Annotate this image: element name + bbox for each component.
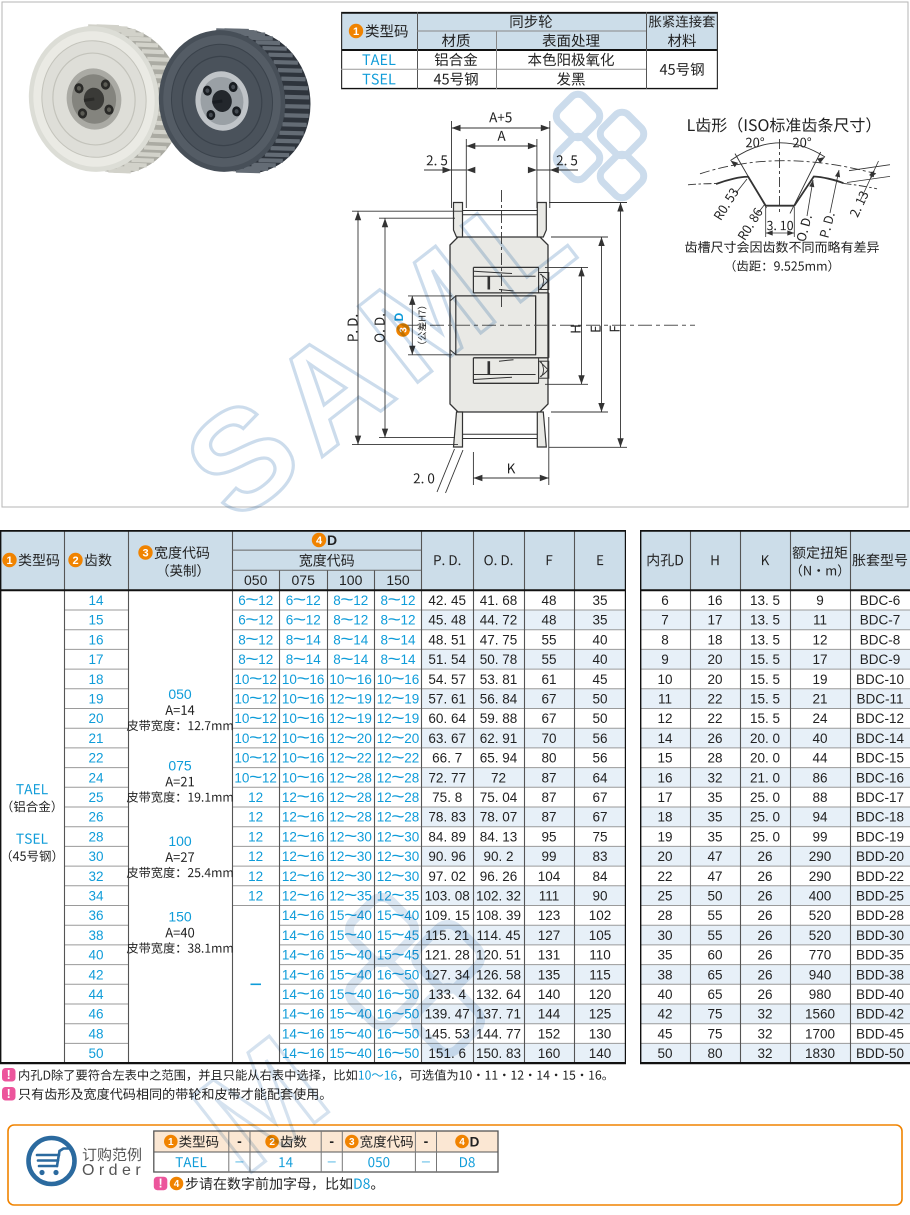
svg-text:40: 40 (592, 652, 607, 667)
svg-text:10: 10 (282, 731, 297, 746)
svg-text:12: 12 (353, 593, 368, 608)
svg-text:28: 28 (357, 770, 372, 785)
svg-text:17: 17 (657, 790, 672, 805)
svg-text:30: 30 (404, 869, 419, 884)
svg-text:111: 111 (539, 889, 560, 904)
svg-text:26: 26 (757, 967, 772, 982)
svg-text:980: 980 (809, 987, 832, 1002)
svg-text:BDC-15: BDC-15 (856, 751, 904, 766)
svg-text:67: 67 (541, 692, 556, 707)
svg-text:35: 35 (592, 593, 607, 608)
svg-text:~: ~ (293, 649, 306, 669)
svg-text:16: 16 (309, 1007, 324, 1022)
svg-text:12: 12 (282, 829, 297, 844)
svg-text:20: 20 (707, 652, 722, 667)
svg-text:1830: 1830 (805, 1046, 835, 1061)
svg-text:~: ~ (340, 649, 353, 669)
svg-text:105: 105 (589, 928, 612, 943)
svg-text:4: 4 (459, 1137, 465, 1148)
svg-text:13. 5: 13. 5 (750, 593, 780, 608)
svg-text:127: 127 (538, 928, 561, 943)
svg-text:12: 12 (377, 731, 392, 746)
svg-text:16: 16 (88, 632, 103, 647)
svg-text:28: 28 (88, 829, 103, 844)
svg-text:BDC-10: BDC-10 (856, 672, 904, 687)
svg-text:10: 10 (282, 751, 297, 766)
svg-text:~: ~ (344, 1043, 357, 1063)
svg-text:26: 26 (88, 810, 103, 825)
svg-text:290: 290 (809, 869, 832, 884)
svg-text:16: 16 (377, 1046, 392, 1061)
svg-text:46: 46 (88, 1007, 103, 1022)
svg-text:30: 30 (404, 829, 419, 844)
svg-text:~: ~ (344, 1023, 357, 1043)
svg-text:~: ~ (344, 826, 357, 846)
svg-text:14: 14 (282, 1007, 298, 1022)
svg-text:64: 64 (592, 770, 608, 785)
svg-text:~: ~ (344, 846, 357, 866)
svg-text:20: 20 (357, 731, 372, 746)
svg-text:8: 8 (661, 632, 669, 647)
svg-text:~: ~ (344, 708, 357, 728)
svg-text:17: 17 (88, 652, 103, 667)
svg-text:22: 22 (357, 751, 372, 766)
svg-text:40: 40 (812, 731, 827, 746)
svg-text:12: 12 (282, 849, 297, 864)
svg-text:075: 075 (292, 572, 316, 588)
svg-text:~: ~ (249, 669, 262, 689)
svg-text:40: 40 (657, 987, 672, 1002)
svg-text:56: 56 (592, 751, 607, 766)
svg-text:28: 28 (357, 790, 372, 805)
svg-text:12: 12 (377, 770, 392, 785)
svg-text:100: 100 (339, 572, 363, 588)
svg-text:D: D (327, 532, 337, 548)
svg-text:16: 16 (309, 1046, 324, 1061)
svg-text:150. 83: 150. 83 (476, 1046, 521, 1061)
svg-text:65. 94: 65. 94 (480, 751, 518, 766)
svg-text:BDC-14: BDC-14 (856, 731, 905, 746)
svg-text:87: 87 (541, 770, 556, 785)
svg-text:050: 050 (244, 572, 268, 588)
svg-text:16: 16 (309, 810, 324, 825)
svg-text:520: 520 (809, 928, 832, 943)
svg-text:050: 050 (168, 686, 192, 702)
svg-text:BDC-17: BDC-17 (856, 790, 904, 805)
svg-text:10: 10 (282, 672, 297, 687)
svg-text:1: 1 (168, 1137, 174, 1148)
svg-text:12: 12 (262, 770, 277, 785)
svg-text:38: 38 (657, 967, 672, 982)
svg-text:~: ~ (391, 1043, 404, 1063)
svg-text:25. 0: 25. 0 (750, 810, 780, 825)
svg-text:26: 26 (757, 948, 772, 963)
svg-text:48: 48 (88, 1026, 103, 1041)
svg-text:130: 130 (589, 1026, 612, 1041)
svg-text:30: 30 (357, 849, 372, 864)
svg-text:96. 26: 96. 26 (480, 869, 518, 884)
svg-text:15. 5: 15. 5 (750, 672, 780, 687)
svg-text:10: 10 (282, 770, 297, 785)
svg-text:20. 0: 20. 0 (750, 751, 780, 766)
svg-text:1700: 1700 (805, 1026, 835, 1041)
svg-text:12: 12 (282, 869, 297, 884)
svg-text:-: - (424, 1133, 429, 1149)
svg-text:120: 120 (589, 987, 612, 1002)
svg-text:24: 24 (812, 711, 828, 726)
svg-text:44: 44 (88, 987, 104, 1002)
svg-text:400: 400 (809, 889, 832, 904)
svg-text:126. 58: 126. 58 (476, 967, 521, 982)
svg-text:40: 40 (357, 1046, 372, 1061)
svg-text:30: 30 (657, 928, 672, 943)
svg-text:72: 72 (491, 770, 506, 785)
svg-text:40: 40 (357, 1026, 372, 1041)
svg-text:16: 16 (657, 770, 672, 785)
svg-text:BDD-22: BDD-22 (856, 869, 904, 884)
svg-text:20: 20 (707, 672, 722, 687)
svg-text:!: ! (158, 1177, 162, 1191)
svg-text:61: 61 (541, 672, 556, 687)
svg-text:51. 54: 51. 54 (428, 652, 466, 667)
svg-text:104: 104 (538, 869, 561, 884)
svg-text:12: 12 (329, 829, 344, 844)
svg-text:16: 16 (357, 672, 372, 687)
svg-text:62. 91: 62. 91 (480, 731, 518, 746)
svg-text:45: 45 (592, 672, 607, 687)
svg-text:132. 64: 132. 64 (476, 987, 522, 1002)
svg-text:66. 7: 66. 7 (432, 751, 462, 766)
svg-text:30: 30 (357, 829, 372, 844)
svg-text:115: 115 (589, 967, 611, 982)
svg-text:25. 0: 25. 0 (750, 790, 780, 805)
svg-text:~: ~ (391, 747, 404, 767)
svg-text:16: 16 (309, 967, 324, 982)
svg-text:16: 16 (309, 948, 324, 963)
svg-text:28: 28 (357, 810, 372, 825)
svg-text:15: 15 (329, 1026, 344, 1041)
svg-text:12: 12 (329, 770, 344, 785)
svg-text:~: ~ (245, 610, 258, 630)
svg-text:15. 5: 15. 5 (750, 711, 780, 726)
svg-text:15. 5: 15. 5 (750, 692, 780, 707)
svg-text:~: ~ (249, 767, 262, 787)
svg-text:16: 16 (377, 987, 392, 1002)
svg-text:16: 16 (309, 1026, 324, 1041)
svg-text:22: 22 (88, 751, 103, 766)
svg-text:~: ~ (296, 925, 309, 945)
svg-text:4: 4 (174, 1179, 180, 1190)
svg-text:47: 47 (707, 869, 722, 884)
svg-text:20: 20 (657, 849, 672, 864)
svg-text:35: 35 (404, 889, 419, 904)
svg-text:67: 67 (541, 711, 556, 726)
svg-text:14: 14 (282, 908, 298, 923)
svg-text:12: 12 (329, 751, 344, 766)
svg-text:770: 770 (809, 948, 832, 963)
svg-text:35: 35 (707, 829, 722, 844)
svg-text:60: 60 (707, 948, 722, 963)
svg-text:90: 90 (592, 889, 607, 904)
svg-text:BDC-16: BDC-16 (856, 770, 904, 785)
svg-text:131: 131 (538, 948, 561, 963)
svg-text:65: 65 (707, 987, 722, 1002)
svg-text:12: 12 (282, 810, 297, 825)
svg-text:84. 89: 84. 89 (428, 829, 466, 844)
svg-text:~: ~ (296, 964, 309, 984)
svg-text:~: ~ (391, 767, 404, 787)
svg-text:7: 7 (661, 613, 669, 628)
svg-text:16: 16 (404, 672, 419, 687)
svg-text:16: 16 (309, 770, 324, 785)
svg-text:13. 5: 13. 5 (750, 632, 780, 647)
svg-text:35: 35 (707, 790, 722, 805)
svg-text:12: 12 (353, 613, 368, 628)
svg-text:75: 75 (707, 1007, 722, 1022)
svg-text:55: 55 (541, 632, 556, 647)
svg-text:53. 81: 53. 81 (480, 672, 518, 687)
svg-text:94: 94 (812, 810, 828, 825)
svg-text:40: 40 (88, 948, 103, 963)
svg-text:~: ~ (340, 629, 353, 649)
svg-text:~: ~ (391, 984, 404, 1004)
svg-text:10: 10 (234, 711, 249, 726)
svg-text:12: 12 (401, 593, 416, 608)
svg-text:~: ~ (296, 669, 309, 689)
svg-text:80: 80 (707, 1046, 722, 1061)
svg-text:19: 19 (357, 692, 372, 707)
svg-text:121. 28: 121. 28 (425, 948, 470, 963)
svg-text:50: 50 (592, 711, 607, 726)
svg-text:~: ~ (391, 787, 404, 807)
svg-text:42: 42 (657, 1007, 672, 1022)
svg-text:56: 56 (592, 731, 607, 746)
svg-text:16: 16 (309, 928, 324, 943)
svg-text:14: 14 (282, 1026, 298, 1041)
svg-text:12: 12 (329, 810, 344, 825)
svg-text:12: 12 (306, 613, 321, 628)
svg-text:~: ~ (296, 807, 309, 827)
svg-text:57. 61: 57. 61 (428, 692, 466, 707)
svg-text:16: 16 (309, 751, 324, 766)
svg-text:12: 12 (377, 711, 392, 726)
svg-text:32: 32 (757, 1007, 772, 1022)
svg-text:12: 12 (248, 790, 263, 805)
svg-text:20: 20 (88, 711, 103, 726)
svg-text:~: ~ (391, 846, 404, 866)
svg-text:84. 13: 84. 13 (480, 829, 518, 844)
svg-text:14: 14 (353, 632, 369, 647)
svg-text:14: 14 (657, 731, 673, 746)
svg-text:BDC-8: BDC-8 (860, 632, 901, 647)
svg-text:32: 32 (707, 770, 722, 785)
svg-text:35: 35 (592, 613, 607, 628)
svg-text:11: 11 (658, 692, 672, 707)
svg-text:16: 16 (377, 967, 392, 982)
svg-text:90. 96: 90. 96 (428, 849, 466, 864)
svg-text:~: ~ (296, 747, 309, 767)
svg-text:~: ~ (344, 787, 357, 807)
svg-text:28: 28 (404, 770, 419, 785)
svg-text:BDD-45: BDD-45 (856, 1026, 904, 1041)
svg-text:67: 67 (592, 810, 607, 825)
svg-text:72. 77: 72. 77 (428, 770, 466, 785)
svg-text:BDD-38: BDD-38 (856, 967, 904, 982)
svg-text:10: 10 (377, 672, 392, 687)
svg-text:10: 10 (234, 751, 249, 766)
svg-text:56. 84: 56. 84 (480, 692, 518, 707)
svg-text:26: 26 (757, 889, 772, 904)
svg-text:16: 16 (707, 593, 722, 608)
svg-text:~: ~ (344, 866, 357, 886)
svg-text:12: 12 (258, 652, 273, 667)
svg-text:55: 55 (541, 652, 556, 667)
svg-text:18: 18 (88, 672, 103, 687)
svg-text:14: 14 (282, 987, 298, 1002)
svg-text:18: 18 (707, 632, 722, 647)
svg-text:70: 70 (541, 731, 556, 746)
svg-text:~: ~ (391, 826, 404, 846)
svg-text:075: 075 (168, 758, 192, 774)
svg-text:15: 15 (329, 967, 344, 982)
svg-text:~: ~ (344, 688, 357, 708)
svg-text:12: 12 (262, 731, 277, 746)
svg-text:102: 102 (589, 908, 612, 923)
svg-text:10: 10 (234, 731, 249, 746)
svg-text:15: 15 (329, 1046, 344, 1061)
svg-text:~: ~ (296, 688, 309, 708)
svg-text:16: 16 (309, 987, 324, 1002)
svg-text:520: 520 (809, 908, 832, 923)
svg-text:36: 36 (88, 908, 103, 923)
svg-text:10: 10 (282, 692, 297, 707)
svg-text:59. 88: 59. 88 (480, 711, 518, 726)
svg-text:~: ~ (344, 807, 357, 827)
svg-text:50: 50 (88, 1046, 103, 1061)
svg-text:10: 10 (234, 770, 249, 785)
svg-text:9: 9 (661, 652, 669, 667)
svg-text:~: ~ (245, 629, 258, 649)
svg-text:32: 32 (757, 1046, 772, 1061)
svg-text:44: 44 (812, 751, 828, 766)
svg-text:12: 12 (248, 889, 263, 904)
svg-text:~: ~ (391, 728, 404, 748)
svg-text:19: 19 (657, 829, 672, 844)
svg-text:25. 0: 25. 0 (750, 829, 780, 844)
svg-text:12: 12 (377, 692, 392, 707)
svg-text:19: 19 (88, 692, 103, 707)
svg-text:65: 65 (707, 967, 722, 982)
svg-text:BDD-25: BDD-25 (856, 889, 904, 904)
svg-text:21: 21 (88, 731, 103, 746)
svg-text:22: 22 (657, 869, 672, 884)
svg-text:18: 18 (657, 810, 672, 825)
svg-text:9: 9 (816, 593, 824, 608)
svg-text:21: 21 (812, 692, 827, 707)
svg-text:BDC-9: BDC-9 (860, 652, 901, 667)
svg-text:~: ~ (293, 610, 306, 630)
svg-text:10: 10 (234, 692, 249, 707)
svg-text:50: 50 (707, 889, 722, 904)
svg-text:12: 12 (329, 889, 344, 904)
svg-text:28: 28 (404, 790, 419, 805)
svg-text:BDC-19: BDC-19 (856, 829, 904, 844)
svg-text:940: 940 (809, 967, 832, 982)
svg-text:20. 0: 20. 0 (750, 731, 780, 746)
svg-text:13. 5: 13. 5 (750, 613, 780, 628)
svg-text:~: ~ (293, 590, 306, 610)
svg-text:35: 35 (657, 948, 672, 963)
svg-text:26: 26 (707, 731, 722, 746)
svg-text:125: 125 (589, 1007, 612, 1022)
svg-text:BDC-6: BDC-6 (860, 593, 901, 608)
svg-text:30: 30 (357, 869, 372, 884)
svg-text:15: 15 (329, 1007, 344, 1022)
svg-text:24: 24 (88, 770, 104, 785)
svg-text:BDD-50: BDD-50 (856, 1046, 904, 1061)
svg-text:80: 80 (541, 751, 556, 766)
svg-text:12: 12 (248, 829, 263, 844)
svg-text:22: 22 (707, 692, 722, 707)
svg-text:16: 16 (309, 731, 324, 746)
svg-text:3: 3 (142, 548, 148, 560)
svg-text:~: ~ (296, 866, 309, 886)
svg-text:135: 135 (538, 967, 561, 982)
svg-text:19: 19 (404, 692, 419, 707)
svg-text:26: 26 (757, 928, 772, 943)
svg-text:15: 15 (657, 751, 672, 766)
svg-text:114. 45: 114. 45 (476, 928, 520, 943)
svg-text:~: ~ (249, 688, 262, 708)
svg-text:40: 40 (592, 632, 607, 647)
svg-text:22: 22 (707, 711, 722, 726)
svg-text:48: 48 (541, 613, 556, 628)
svg-text:47: 47 (707, 849, 722, 864)
svg-text:30: 30 (88, 849, 103, 864)
svg-text:12: 12 (329, 849, 344, 864)
svg-text:12: 12 (262, 751, 277, 766)
svg-text:38: 38 (88, 928, 103, 943)
svg-text:!: ! (7, 1087, 11, 1101)
svg-text:97. 02: 97. 02 (428, 869, 466, 884)
svg-text:12: 12 (282, 889, 297, 904)
svg-text:15: 15 (377, 928, 392, 943)
svg-text:1: 1 (353, 26, 359, 38)
svg-text:87: 87 (541, 790, 556, 805)
svg-text:99: 99 (812, 829, 827, 844)
svg-text:75. 8: 75. 8 (432, 790, 462, 805)
svg-text:14: 14 (88, 593, 104, 608)
svg-text:16: 16 (309, 711, 324, 726)
svg-text:19: 19 (404, 711, 419, 726)
svg-text:45: 45 (657, 1026, 672, 1041)
svg-text:D: D (470, 1134, 480, 1149)
svg-text:12: 12 (377, 869, 392, 884)
svg-text:17: 17 (707, 613, 722, 628)
svg-text:22: 22 (404, 751, 419, 766)
svg-text:~: ~ (296, 728, 309, 748)
svg-text:~: ~ (344, 747, 357, 767)
svg-text:67: 67 (592, 790, 607, 805)
svg-text:~: ~ (296, 1004, 309, 1024)
svg-text:BDD-30: BDD-30 (856, 928, 904, 943)
svg-text:54. 57: 54. 57 (428, 672, 466, 687)
svg-text:102. 32: 102. 32 (476, 889, 521, 904)
svg-text:160: 160 (538, 1046, 561, 1061)
svg-text:12: 12 (262, 711, 277, 726)
svg-text:34: 34 (88, 889, 104, 904)
svg-text:16: 16 (309, 889, 324, 904)
